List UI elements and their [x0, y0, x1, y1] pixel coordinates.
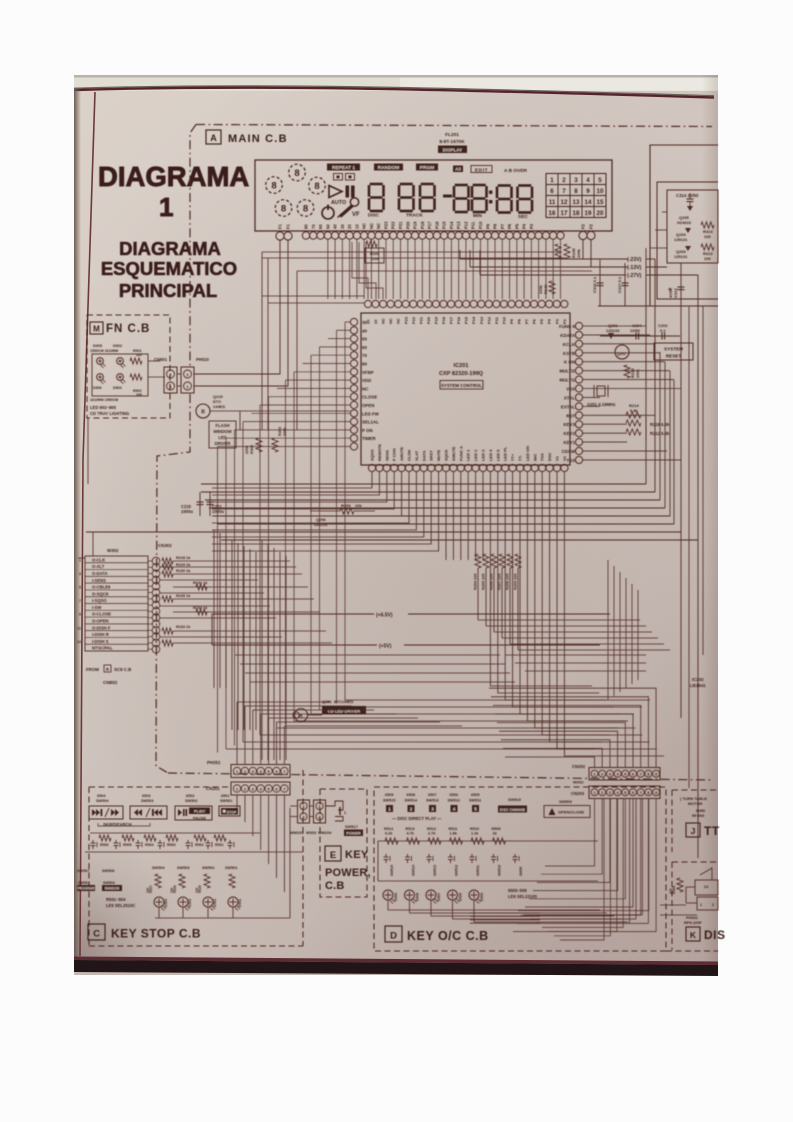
svg-text:4: 4	[453, 807, 456, 812]
svg-text:R235 1k: R235 1k	[176, 594, 191, 598]
svg-text:7: 7	[640, 791, 642, 795]
svg-text:CDSW: CDSW	[562, 449, 576, 454]
svg-text:P10: P10	[501, 316, 506, 324]
svg-text:DRIVER: DRIVER	[215, 441, 231, 446]
svg-text:SQSO: SQSO	[370, 449, 375, 461]
svg-text:FN C.B: FN C.B	[106, 323, 150, 335]
svg-text:F1: F1	[286, 223, 291, 229]
svg-text:LED 2: LED 2	[473, 449, 478, 461]
svg-text:CN601: CN601	[154, 357, 168, 362]
svg-text:SW507: SW507	[78, 881, 90, 885]
svg-text:NC: NC	[369, 223, 374, 229]
svg-text:9: 9	[655, 791, 657, 795]
svg-text:8: 8	[647, 791, 649, 795]
svg-text:2: 2	[244, 788, 246, 792]
svg-text:IC201: IC201	[454, 363, 469, 369]
svg-text:135131: 135131	[674, 237, 688, 242]
svg-text:P6: P6	[507, 223, 512, 229]
svg-text:1: 1	[302, 805, 304, 809]
svg-text:P CON: P CON	[392, 448, 397, 461]
svg-text:PAUSE: PAUSE	[193, 816, 207, 821]
svg-text:P19: P19	[433, 316, 438, 324]
svg-text:8: 8	[281, 204, 286, 215]
svg-text:14: 14	[704, 884, 709, 889]
svg-text:O-DATA: O-DATA	[92, 571, 108, 576]
svg-text:KEY2: KEY2	[564, 431, 576, 436]
svg-text:R: R	[201, 410, 205, 416]
svg-text:2: 2	[244, 770, 246, 774]
svg-text:W302: W302	[107, 548, 119, 553]
svg-text:6.2k: 6.2k	[385, 832, 393, 836]
svg-text:SW519: SW519	[508, 797, 522, 802]
svg-text:Q251: Q251	[322, 699, 333, 704]
svg-text:18: 18	[573, 210, 580, 217]
svg-text:K ON: K ON	[564, 360, 575, 365]
svg-text:R230 1k: R230 1k	[176, 569, 191, 573]
svg-text:6: 6	[275, 770, 277, 774]
svg-text:VFBP: VFBP	[362, 370, 374, 375]
svg-text:6: 6	[550, 188, 554, 195]
svg-text:7: 7	[640, 773, 642, 777]
svg-text:6503: 6503	[142, 794, 150, 798]
svg-text:P7: P7	[524, 318, 529, 324]
svg-text:10: 10	[373, 319, 378, 324]
svg-text:P3: P3	[529, 223, 534, 229]
svg-text:LED 4: LED 4	[488, 449, 493, 461]
svg-text:R228 1k: R228 1k	[176, 556, 191, 560]
svg-text:(+6.5V): (+6.5V)	[376, 613, 393, 619]
svg-text:CD TRAY LIGHTING: CD TRAY LIGHTING	[90, 411, 129, 416]
svg-text:70: 70	[362, 353, 367, 358]
svg-text:C.B: C.B	[325, 880, 345, 892]
svg-text:— DISC DIRECT PLAY —: — DISC DIRECT PLAY —	[392, 816, 442, 821]
svg-text:OPEN: OPEN	[362, 403, 374, 408]
svg-text:P20: P20	[426, 316, 431, 324]
svg-text:6506: 6506	[450, 793, 458, 797]
svg-text:NC: NC	[376, 223, 381, 229]
svg-text:3: 3	[431, 807, 434, 812]
svg-text:SW512: SW512	[455, 865, 459, 876]
svg-text:O-XLT: O-XLT	[92, 564, 105, 569]
svg-text:R234 1k: R234 1k	[193, 606, 208, 610]
svg-text:P5: P5	[539, 318, 544, 324]
svg-text:R303: R303	[278, 427, 282, 436]
svg-text:3: 3	[574, 177, 578, 184]
svg-text:5: 5	[598, 177, 602, 184]
svg-text:12: 12	[561, 199, 568, 206]
svg-text:R231 1k: R231 1k	[193, 581, 208, 585]
svg-text:P18: P18	[441, 316, 446, 324]
svg-text:R514: R514	[384, 827, 394, 831]
svg-text:RST: RST	[566, 413, 575, 418]
svg-text:AMUTE: AMUTE	[399, 446, 404, 461]
svg-text:R511: R511	[449, 827, 458, 831]
svg-text:4: 4	[617, 773, 619, 777]
svg-text:16: 16	[549, 210, 556, 217]
svg-text:B: B	[106, 667, 109, 672]
svg-text:4: 4	[617, 791, 619, 795]
svg-text:6: 6	[632, 773, 634, 777]
svg-text:SW502: SW502	[202, 866, 214, 870]
svg-text:2: 2	[562, 177, 566, 184]
svg-text:SYSTEM CONTROL: SYSTEM CONTROL	[441, 383, 482, 388]
svg-text:RANDOM: RANDOM	[378, 165, 400, 171]
svg-text:D506: D506	[459, 893, 463, 901]
svg-text:1.2k: 1.2k	[471, 832, 479, 836]
svg-text:P14: P14	[449, 221, 454, 229]
svg-text:CLOK: CLOK	[407, 450, 412, 461]
svg-text:I-SQSO: I-SQSO	[92, 598, 107, 603]
svg-text:SW510: SW510	[498, 865, 502, 876]
svg-text:40: 40	[362, 328, 367, 333]
svg-text:CN302: CN302	[158, 543, 172, 548]
svg-text:F2: F2	[581, 223, 586, 229]
svg-text:R206 220: R206 220	[490, 574, 494, 590]
svg-text:SW504: SW504	[103, 881, 115, 885]
svg-text:VDD: VDD	[362, 378, 371, 383]
svg-text:D902: D902	[113, 344, 122, 348]
svg-text:SW511: SW511	[476, 865, 480, 876]
svg-text:W202: W202	[573, 780, 584, 785]
svg-text:RP9-100F: RP9-100F	[684, 920, 702, 925]
svg-text:PH251: PH251	[207, 760, 221, 765]
svg-text:P4: P4	[547, 318, 552, 324]
svg-text:LE6 SEL2210S: LE6 SEL2210S	[508, 894, 537, 899]
svg-text:SC8 C.B: SC8 C.B	[114, 667, 131, 672]
svg-text:R501: R501	[215, 843, 224, 847]
svg-text:KEY3: KEY3	[564, 422, 576, 427]
svg-text:SENS: SENS	[384, 450, 389, 461]
svg-text:30: 30	[340, 224, 345, 229]
svg-text:MIN: MIN	[473, 213, 482, 219]
svg-text:220: 220	[170, 887, 174, 893]
svg-text:STOP: STOP	[227, 810, 237, 814]
svg-text:8: 8	[647, 773, 649, 777]
svg-text:SW507: SW507	[77, 869, 89, 873]
svg-text:(-27V): (-27V)	[627, 273, 642, 279]
svg-text:GMUTE: GMUTE	[451, 446, 456, 461]
svg-text:135131: 135131	[674, 254, 688, 259]
svg-text:SW502: SW502	[185, 799, 197, 803]
svg-text:1: 1	[550, 177, 554, 184]
svg-text:1: 1	[236, 788, 238, 792]
svg-text:NC: NC	[396, 318, 401, 324]
svg-text:P8: P8	[517, 318, 522, 324]
svg-text:1: 1	[79, 558, 81, 562]
svg-text:TIMER: TIMER	[362, 436, 376, 441]
svg-text:XRST: XRST	[429, 450, 434, 461]
svg-text:2: 2	[601, 791, 603, 795]
svg-text:P9: P9	[485, 223, 490, 229]
svg-text:P21: P21	[418, 316, 423, 324]
svg-text:4: 4	[586, 177, 590, 184]
svg-text:LED 5: LED 5	[495, 449, 500, 461]
svg-text:D504: D504	[164, 899, 168, 907]
svg-text:D509: D509	[394, 893, 398, 901]
svg-text:9: 9	[655, 773, 657, 777]
svg-text:D505: D505	[480, 893, 484, 901]
svg-text:SW506: SW506	[102, 869, 114, 873]
svg-text:R233 1k: R233 1k	[176, 625, 191, 629]
svg-text:R208 220: R208 220	[506, 574, 510, 590]
svg-text:2: 2	[712, 903, 714, 907]
svg-text:P13: P13	[479, 316, 484, 324]
svg-text:60: 60	[362, 345, 367, 350]
svg-text:P12: P12	[463, 221, 468, 229]
svg-text:100k: 100k	[576, 248, 581, 258]
svg-text:9: 9	[586, 188, 590, 195]
svg-text:1000u: 1000u	[181, 509, 193, 514]
svg-text:4.7k: 4.7k	[407, 832, 415, 836]
svg-text:DIS: DIS	[704, 928, 726, 942]
svg-text:220: 220	[195, 887, 199, 893]
svg-text:6501: 6501	[221, 794, 229, 798]
svg-text:11: 11	[77, 626, 81, 630]
svg-text:WINDOW: WINDOW	[213, 429, 231, 434]
svg-text:5: 5	[268, 770, 270, 774]
svg-text:100k: 100k	[538, 284, 543, 294]
svg-text:LED 1: LED 1	[466, 449, 471, 461]
svg-text:SW503: SW503	[177, 866, 189, 870]
svg-text:1000u: 1000u	[212, 509, 224, 514]
svg-text:LED PL: LED PL	[503, 446, 508, 461]
svg-text:R146: R146	[543, 284, 548, 294]
svg-text:60: 60	[318, 224, 323, 229]
svg-text:LED ON: LED ON	[525, 446, 530, 461]
svg-text:I-SW: I-SW	[92, 605, 101, 610]
svg-text:POWER: POWER	[346, 832, 361, 836]
svg-text:13: 13	[77, 640, 81, 644]
svg-text:P5: P5	[514, 223, 519, 229]
svg-text:7: 7	[283, 788, 285, 792]
svg-text:133133: 133133	[606, 328, 620, 333]
svg-text:2: 2	[410, 807, 413, 812]
svg-text:P ON: P ON	[362, 428, 373, 433]
svg-text:PH510: PH510	[196, 357, 209, 362]
svg-text:RESET: RESET	[666, 354, 682, 359]
svg-text:LED 3: LED 3	[481, 449, 486, 461]
svg-text:1: 1	[344, 811, 346, 815]
svg-text:RF-500: RF-500	[692, 814, 704, 818]
svg-text:D503: D503	[188, 899, 192, 907]
svg-text:80: 80	[304, 224, 309, 229]
svg-text:MUTE: MUTE	[436, 449, 441, 461]
svg-text:14: 14	[585, 199, 592, 206]
svg-text:P15: P15	[442, 221, 447, 229]
svg-text:M450: M450	[696, 809, 705, 813]
svg-text:D905: D905	[93, 344, 102, 348]
svg-text:1.8k: 1.8k	[450, 832, 458, 836]
svg-text:C317 0.1: C317 0.1	[617, 276, 622, 293]
svg-text:P18: P18	[420, 221, 425, 229]
svg-text:FL201: FL201	[445, 132, 459, 138]
svg-text:F1: F1	[278, 223, 283, 229]
svg-text:V2: V2	[562, 455, 567, 461]
svg-text:PRINCIPAL: PRINCIPAL	[119, 280, 217, 301]
svg-text:SEC: SEC	[518, 214, 528, 220]
svg-text:LED: LED	[218, 435, 226, 440]
svg-text:390: 390	[136, 393, 142, 397]
svg-text:P22: P22	[411, 316, 416, 324]
svg-text:A: A	[210, 133, 217, 143]
svg-text:CN802: CN802	[103, 680, 118, 685]
svg-text:R302: R302	[250, 445, 254, 454]
svg-text:O-OPEN: O-OPEN	[92, 618, 109, 623]
svg-text:C313: C313	[673, 288, 678, 298]
svg-text:O-CLOSE: O-CLOSE	[92, 612, 111, 617]
svg-text:SW515: SW515	[390, 865, 394, 876]
svg-text:1: 1	[388, 807, 391, 812]
svg-text:20: 20	[347, 224, 352, 229]
svg-text:R207 220: R207 220	[498, 574, 502, 590]
svg-text:R243: R243	[370, 252, 379, 256]
svg-text:R503: R503	[167, 843, 176, 847]
svg-text:8: 8	[314, 181, 319, 192]
svg-text:3: 3	[609, 773, 611, 777]
svg-text:P14: P14	[471, 316, 476, 324]
svg-text:PLAY/: PLAY/	[194, 809, 206, 814]
svg-text:D501: D501	[238, 899, 242, 907]
svg-text:REPEAT 1: REPEAT 1	[332, 165, 355, 171]
svg-text:8-8T-1670K: 8-8T-1670K	[439, 139, 465, 145]
svg-text:6508: 6508	[407, 793, 415, 797]
svg-text:R509: R509	[492, 827, 501, 831]
svg-text:MOTOR: MOTOR	[688, 801, 703, 806]
svg-text:100: 100	[704, 234, 711, 239]
svg-text:1: 1	[594, 773, 596, 777]
svg-text:DATA: DATA	[421, 450, 426, 461]
svg-text:NC: NC	[381, 318, 386, 324]
svg-text:NC: NC	[362, 386, 369, 391]
svg-text:1: 1	[700, 903, 702, 907]
svg-text:100k: 100k	[635, 368, 640, 378]
svg-text:470: 470	[669, 888, 673, 894]
svg-text:6505: 6505	[471, 793, 479, 797]
svg-text:D: D	[390, 931, 397, 942]
svg-text:W303: W303	[306, 830, 317, 835]
svg-text:V1: V1	[555, 455, 560, 461]
svg-text:8: 8	[574, 188, 578, 195]
svg-text:CXP 82320-199Q: CXP 82320-199Q	[439, 371, 484, 377]
svg-text:3: 3	[79, 572, 81, 576]
svg-text:1: 1	[236, 770, 238, 774]
svg-text:+: +	[668, 287, 671, 293]
svg-text:2: 2	[302, 816, 304, 820]
svg-text:19: 19	[585, 210, 592, 217]
svg-text:7: 7	[562, 188, 566, 195]
svg-text:P8: P8	[493, 223, 498, 229]
svg-text:SW515: SW515	[383, 799, 395, 803]
svg-text:RANDOM: RANDOM	[105, 887, 120, 891]
svg-text:A B OVER: A B OVER	[504, 168, 528, 174]
svg-text:2.7k: 2.7k	[428, 832, 436, 836]
svg-text:KEY1: KEY1	[564, 440, 576, 445]
svg-text:P13: P13	[456, 221, 461, 229]
svg-text:80: 80	[362, 362, 367, 367]
svg-text:SW513: SW513	[426, 799, 438, 803]
svg-text:2: 2	[601, 773, 603, 777]
svg-text:R510: R510	[470, 827, 479, 831]
svg-text:WM203: WM203	[290, 830, 304, 835]
svg-text:F2: F2	[589, 223, 594, 229]
svg-text:KEY O/C C.B: KEY O/C C.B	[407, 929, 489, 943]
svg-text:OPEN/CLOSE: OPEN/CLOSE	[558, 810, 585, 815]
svg-text:PROGRAM: PROGRAM	[78, 887, 95, 891]
svg-text:KCLK: KCLK	[563, 342, 576, 347]
svg-text:SW59: SW59	[519, 867, 523, 876]
svg-text:6505~509: 6505~509	[508, 888, 527, 893]
svg-text:NC: NC	[362, 223, 367, 229]
svg-text:5: 5	[624, 773, 626, 777]
svg-text:1: 1	[159, 192, 173, 222]
svg-text:I-SENS: I-SENS	[92, 578, 106, 583]
svg-text:11: 11	[549, 199, 556, 206]
svg-text:KSTB: KSTB	[563, 351, 575, 356]
svg-text:H24023: H24023	[677, 220, 692, 225]
svg-text:DIAGRAMA: DIAGRAMA	[119, 238, 221, 259]
svg-text:1: 1	[594, 791, 596, 795]
svg-text:10: 10	[597, 188, 604, 195]
svg-text:C: C	[93, 929, 100, 940]
svg-text:SW517: SW517	[345, 824, 358, 829]
svg-text:KEY STOP C.B: KEY STOP C.B	[111, 927, 201, 941]
svg-text:P23: P23	[383, 221, 388, 229]
svg-text:DSC: DSC	[547, 452, 552, 461]
svg-text:SW509: SW509	[559, 799, 573, 804]
svg-text:TSS: TSS	[540, 453, 545, 461]
svg-text:O-SQCK: O-SQCK	[92, 591, 109, 596]
svg-text:SW504: SW504	[152, 866, 165, 870]
svg-text:SEL1AL: SEL1AL	[362, 420, 379, 425]
svg-text:EDIT: EDIT	[475, 167, 488, 173]
svg-text:TT+: TT+	[510, 453, 515, 461]
svg-text:P21: P21	[398, 221, 403, 229]
svg-text:10k: 10k	[355, 503, 362, 508]
svg-text:P19: P19	[413, 221, 418, 229]
svg-text:D507: D507	[437, 893, 441, 901]
svg-text:P17: P17	[449, 316, 454, 324]
svg-text:6: 6	[632, 791, 634, 795]
svg-text:I-DISH S: I-DISH S	[92, 639, 109, 644]
svg-text:O-DISH F: O-DISH F	[92, 625, 111, 630]
svg-text:220: 220	[146, 887, 150, 893]
svg-text:20: 20	[597, 210, 604, 217]
svg-text:J: J	[691, 826, 696, 836]
svg-text:C314 10/50: C314 10/50	[676, 193, 699, 198]
svg-text:EXTAL: EXTAL	[561, 404, 575, 409]
svg-text:AUTO: AUTO	[331, 200, 346, 206]
svg-text:CN202: CN202	[572, 764, 586, 769]
svg-text:R513: R513	[406, 827, 415, 831]
svg-text:A3: A3	[455, 167, 461, 172]
svg-text:D502: D502	[213, 899, 217, 907]
svg-text:ESQUEMATICO: ESQUEMATICO	[101, 258, 237, 279]
svg-text:R209 220: R209 220	[514, 574, 518, 590]
svg-text:TSS: TSS	[566, 458, 575, 463]
svg-text:R512: R512	[427, 827, 436, 831]
svg-text:SYSTEM: SYSTEM	[664, 347, 683, 352]
svg-text:SW501: SW501	[225, 866, 237, 870]
svg-text:(+5V): (+5V)	[379, 644, 392, 650]
svg-text:R501~504: R501~504	[106, 897, 126, 902]
svg-text:P7: P7	[500, 223, 505, 229]
svg-text:SW503: SW503	[141, 799, 153, 803]
svg-text:XTAL: XTAL	[564, 395, 575, 400]
svg-text:CLOSE: CLOSE	[362, 395, 377, 400]
svg-text:220k: 220k	[283, 427, 287, 436]
svg-text:5: 5	[474, 807, 477, 812]
svg-text:P22: P22	[391, 221, 396, 229]
